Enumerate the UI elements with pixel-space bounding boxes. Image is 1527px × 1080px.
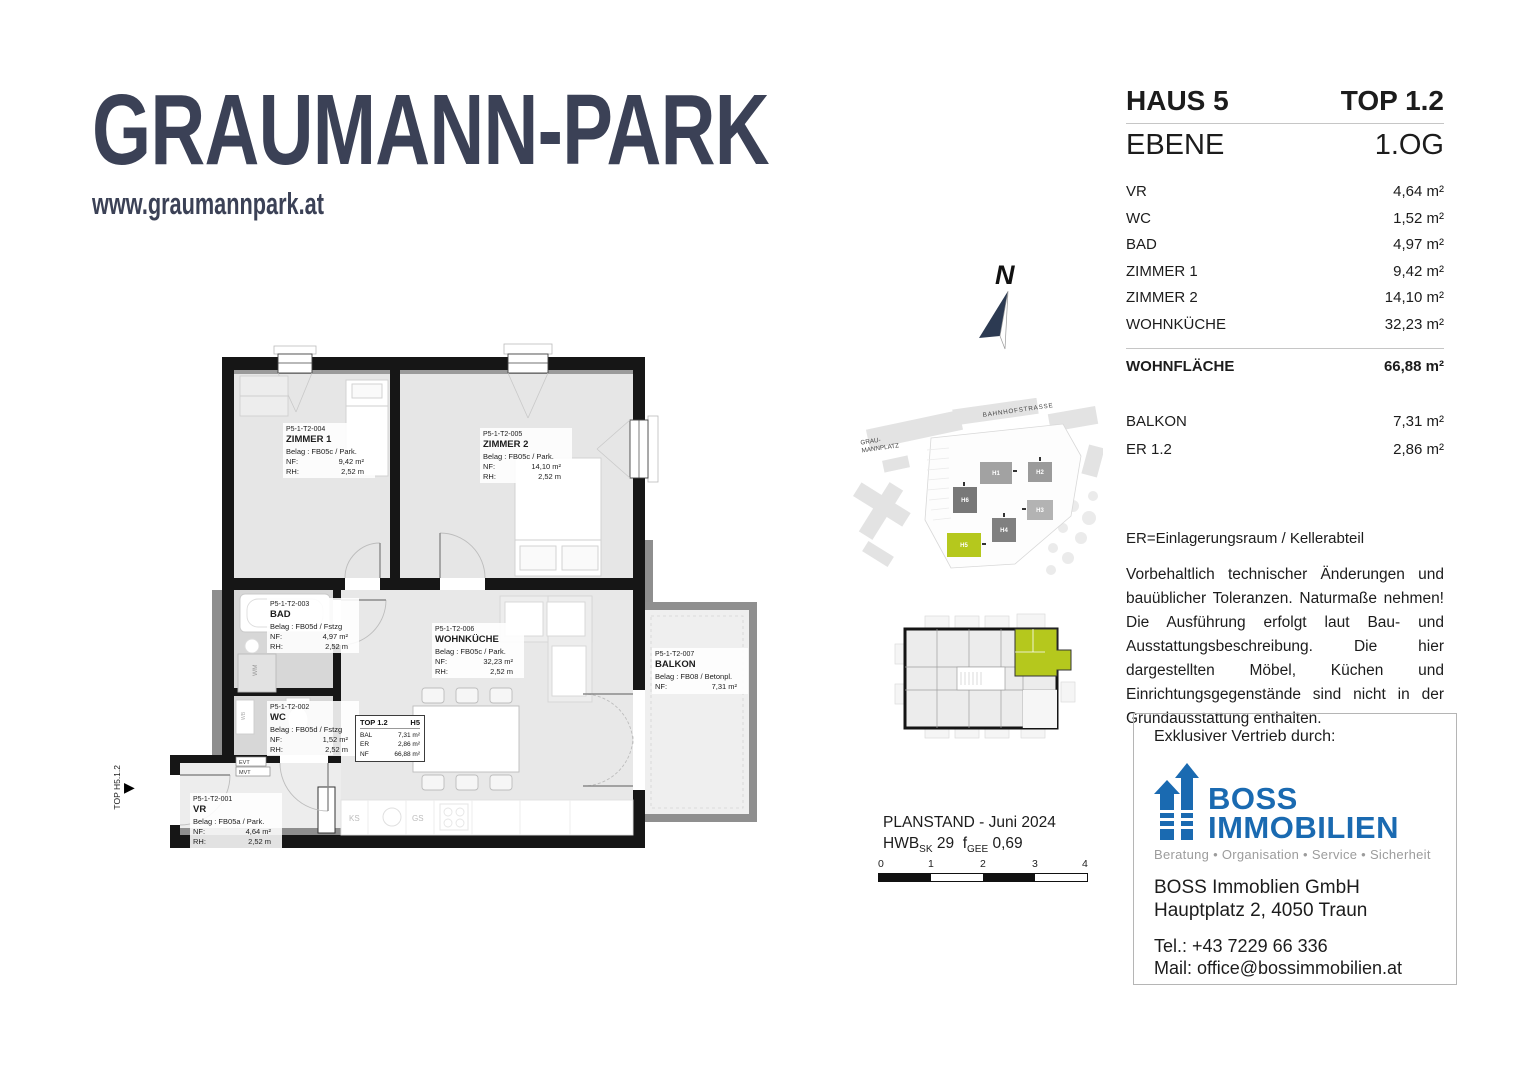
level-label: EBENE [1126,127,1224,163]
scale-bar: 0 1 2 3 4 [878,858,1092,884]
building-h5-label: H5 [960,543,968,549]
boss-buildings-icon [1154,758,1200,842]
level-value: 1.OG [1375,127,1444,163]
room-label-balkon: P5-1-T2-007 BALKON Belag : FB08 / Betonp… [652,648,748,694]
vendor-email: Mail: office@bossimmobilien.at [1154,957,1436,979]
washing-machine-label: WM [252,664,259,676]
scale-tick: 4 [1082,858,1088,870]
north-arrow-icon: N [955,258,1035,363]
er-note: ER=Einlagerungsraum / Kellerabteil [1126,530,1444,547]
extra-row: ER 1.22,86 m² [1126,436,1444,464]
floor-plan-drawing: WM WB KS GS EVT MVT [100,340,770,865]
vendor-heading: Exklusiver Vertrieb durch: [1154,728,1436,746]
site-plan-map: BAHNHOFSTRASSE GRAU- MANNPLATZ H1 H2 H3 … [853,398,1103,578]
building-h3-label: H3 [1036,508,1044,514]
vendor-company: BOSS Immoblien GmbH [1154,876,1436,899]
room-label-zimmer1: P5-1-T2-004 ZIMMER 1 Belag : FB05c / Par… [283,423,375,478]
room-label-vr: P5-1-T2-001 VR Belag : FB05a / Park. NF:… [190,793,282,848]
room-row: VR4,64 m² [1126,179,1444,206]
entry-marker: TOP H5.1.2 ▶ [112,756,135,818]
divider [1126,348,1444,349]
scale-tick: 2 [980,858,986,870]
room-label-zimmer2: P5-1-T2-005 ZIMMER 2 Belag : FB05c / Par… [480,428,572,483]
dishwasher-label: GS [412,814,424,823]
washbasin-label: WB [241,711,247,720]
floor-key-plan [893,612,1078,747]
room-row: ZIMMER 214,10 m² [1126,285,1444,312]
scale-bar-track [878,873,1088,882]
extra-row: BALKON7,31 m² [1126,408,1444,436]
building-h2-label: H2 [1036,470,1044,476]
vendor-logo: BOSS IMMOBILIEN [1154,758,1436,842]
brand-logo: GRAUMANN-PARK www.graumannpark.at [92,80,983,222]
room-label-wc: P5-1-T2-002 WC Belag : FB05d / Fstzg NF:… [267,701,359,756]
vendor-address: Hauptplatz 2, 4050 Traun [1154,899,1436,922]
brand-website: www.graumannpark.at [92,186,715,222]
room-row: WC1,52 m² [1126,206,1444,233]
energy-values: HWBSK 29 fGEE 0,69 [883,833,1056,860]
entry-label: TOP H5.1.2 [112,765,122,810]
scale-tick: 3 [1032,858,1038,870]
compass: N [955,258,1035,368]
floor-plan: WM WB KS GS EVT MVT P5-1-T2-004 ZIMMER 1… [100,340,770,865]
building-h4-label: H4 [1000,528,1008,534]
mvt-label: MVT [239,770,251,776]
room-label-bad: P5-1-T2-003 BAD Belag : FB05d / Fstzg NF… [267,598,359,653]
building-h1-label: H1 [992,471,1000,477]
evt-label: EVT [239,760,250,766]
room-area-list: VR4,64 m² WC1,52 m² BAD4,97 m² ZIMMER 19… [1126,179,1444,338]
planstand-block: PLANSTAND - Juni 2024 HWBSK 29 fGEE 0,69 [883,812,1056,860]
entry-arrow-icon: ▶ [124,780,135,794]
key-plan-drawing [893,612,1078,742]
highlighted-unit [1015,629,1071,676]
disclaimer-text: Vorbehaltlich technischer Änderungen und… [1126,563,1444,731]
brand-logo-text: GRAUMANN-PARK [92,80,769,180]
vendor-phone: Tel.: +43 7229 66 336 [1154,935,1436,957]
unit-data-panel: HAUS 5 TOP 1.2 EBENE 1.OG VR4,64 m² WC1,… [1126,84,1444,731]
extra-area-list: BALKON7,31 m² ER 1.22,86 m² [1126,408,1444,464]
room-label-wohnkueche: P5-1-T2-006 WOHNKÜCHE Belag : FB05c / Pa… [432,623,524,678]
vendor-box: Exklusiver Vertrieb durch: BOSS IMMOBILI… [1133,713,1457,985]
planstand-text: PLANSTAND - Juni 2024 [883,812,1056,833]
fridge-label: KS [349,814,360,823]
top-label: TOP 1.2 [1341,84,1444,118]
scale-tick: 0 [878,858,884,870]
vendor-logo-line2: IMMOBILIEN [1208,813,1399,842]
compass-n-label: N [995,260,1015,290]
site-plan: BAHNHOFSTRASSE GRAU- MANNPLATZ H1 H2 H3 … [853,398,1103,583]
vendor-tagline: Beratung • Organisation • Service • Sich… [1154,847,1436,862]
room-row: ZIMMER 19,42 m² [1126,259,1444,286]
unit-info-box: TOP 1.2 H5 BAL7,31 m² ER2,86 m² NF66,88 … [355,715,425,762]
building-h6-label: H6 [961,498,969,504]
vendor-logo-line1: BOSS [1208,784,1399,813]
room-row: BAD4,97 m² [1126,232,1444,259]
divider [1126,123,1444,124]
plan-document-page: GRAUMANN-PARK www.graumannpark.at HAUS 5… [0,0,1527,1080]
room-row: WOHNKÜCHE32,23 m² [1126,312,1444,339]
house-label: HAUS 5 [1126,84,1229,118]
scale-tick: 1 [928,858,934,870]
total-area-row: WOHNFLÄCHE 66,88 m² [1126,352,1444,382]
